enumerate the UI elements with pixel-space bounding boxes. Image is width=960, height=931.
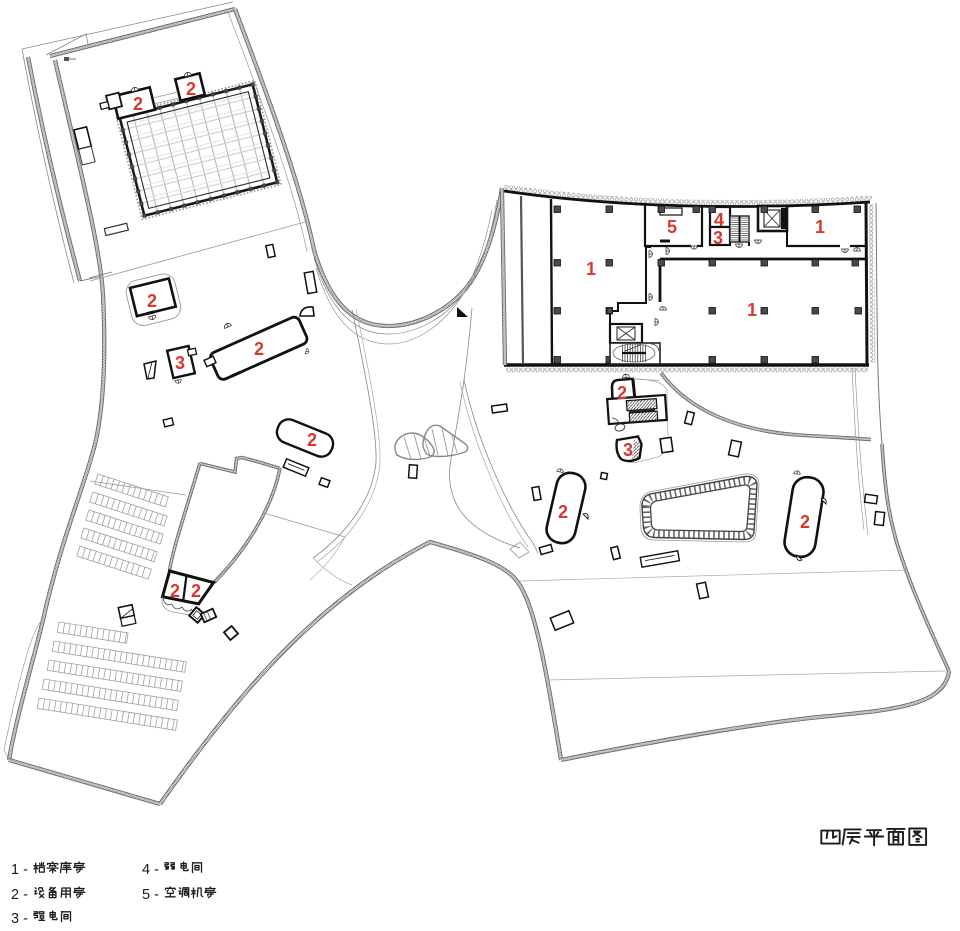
svg-text:2: 2: [307, 430, 317, 450]
svg-text:3: 3: [713, 228, 723, 248]
svg-text:2: 2: [170, 581, 180, 601]
svg-text:2: 2: [558, 502, 568, 522]
svg-text:2: 2: [254, 339, 264, 359]
svg-text:4: 4: [714, 210, 724, 230]
svg-text:1: 1: [815, 217, 825, 237]
svg-text:1 -: 1 -: [11, 862, 28, 878]
svg-text:2: 2: [800, 512, 810, 532]
svg-text:5 -: 5 -: [142, 887, 159, 903]
svg-text:1: 1: [747, 300, 757, 320]
svg-text:4 -: 4 -: [142, 862, 159, 878]
svg-text:2: 2: [617, 383, 627, 403]
svg-text:1: 1: [586, 259, 596, 279]
svg-text:5: 5: [667, 217, 677, 237]
svg-text:2: 2: [147, 291, 157, 311]
svg-text:2: 2: [186, 79, 196, 99]
svg-text:3: 3: [175, 353, 185, 373]
svg-text:2: 2: [191, 581, 201, 601]
svg-text:3 -: 3 -: [11, 911, 28, 927]
svg-text:2: 2: [133, 94, 143, 114]
svg-text:3: 3: [623, 440, 633, 460]
svg-text:2 -: 2 -: [11, 887, 28, 903]
